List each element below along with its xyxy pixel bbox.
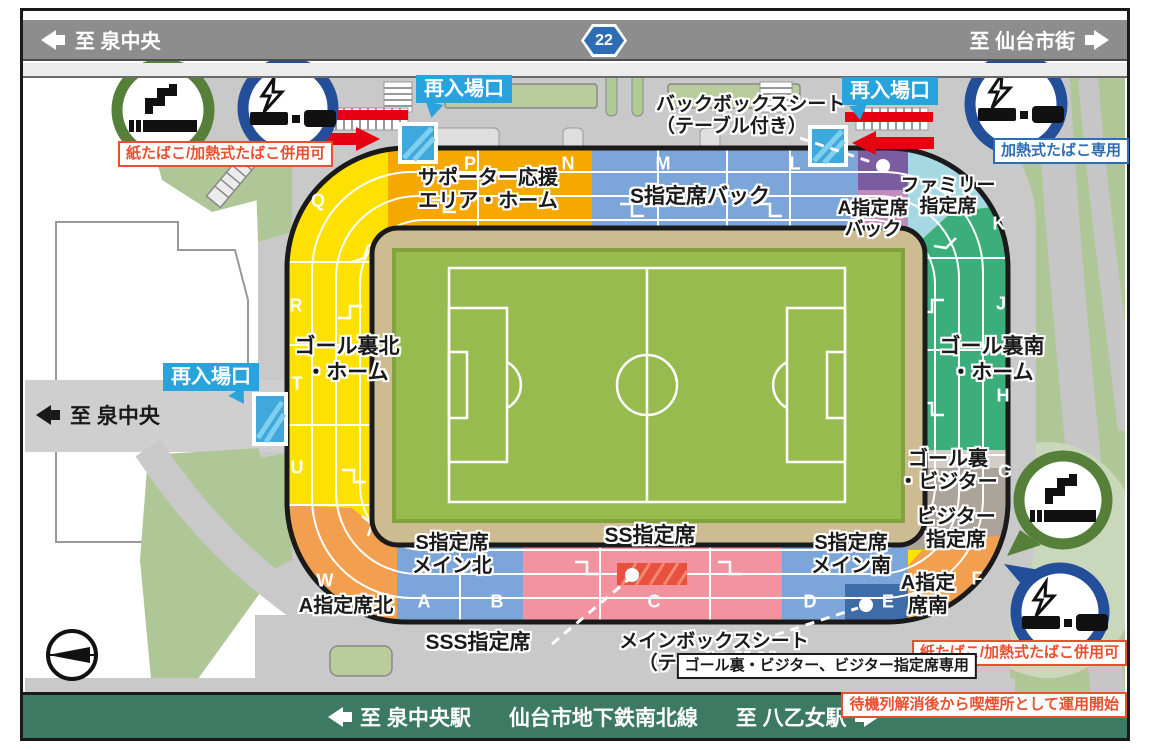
left-arrow-icon [36,405,60,425]
subway-left-label: 至 泉中央駅 [360,702,471,732]
left-arrow-icon [328,707,352,727]
top-road-bar: 至 泉中央 至 仙台市街 [23,20,1127,61]
left-road-label: 至 泉中央 [36,400,160,430]
reentry-label-west: 再入場口 [163,363,259,391]
block-letter-d: D [804,592,817,613]
block-letter-l: L [790,154,801,175]
block-letter-t: T [292,374,303,395]
section-label-s-main-south: S指定席メイン南 [811,532,891,578]
block-letter-w: W [317,571,334,592]
block-letter-f: F [972,569,983,590]
section-label-s-back: S指定席バック [630,185,770,208]
right-arrow-icon [1085,30,1109,50]
block-letter-q: Q [311,191,325,212]
left-arrow-icon [41,30,65,50]
stadium-map-page: { "top_bar": { "left": "至 泉中央", "route_n… [0,0,1150,750]
top-bar-left-label: 至 泉中央 [75,25,161,54]
smoking-rule-heated-only: 加熱式たばこ専用 [993,138,1129,164]
reentry-gate-west [254,394,286,444]
block-letter-g: G [998,462,1012,483]
block-letter-r: R [290,296,303,317]
section-label-goal-south: ゴール裏南・ホーム [940,334,1045,386]
top-bar-right-label: 至 仙台市街 [969,25,1075,54]
section-label-visitor: ビジター指定席 [916,506,996,552]
smoking-rule-both-top: 紙たばこ/加熱式たばこ併用可 [118,141,333,167]
subway-left: 至 泉中央駅 [328,702,471,732]
section-label-a-south: A指定席南 [901,572,955,618]
block-letter-n: N [562,154,575,175]
subway-right-label: 至 八乙女駅 [736,702,847,732]
block-letter-c: C [648,592,661,613]
smoking-rule-visitor-only: ゴール裏・ビジター、ビジター指定席専用 [677,653,977,679]
label-pointer [849,104,869,121]
block-letter-k: K [993,214,1006,235]
block-letter-h: H [997,386,1010,407]
section-label-sss: SSS指定席 [425,631,530,654]
section-label-s-main-north: S指定席メイン北 [412,532,492,578]
route-number: 22 [581,24,627,57]
smoking-rule-note: 待機列解消後から喫煙所として運用開始 [841,692,1127,718]
section-label-goal-north: ゴール裏北・ホーム [295,334,400,386]
section-label-a-north: A指定席北 [299,595,393,618]
section-label-a-back: A指定席バック [838,198,909,240]
section-label-goal-visitor: ゴール裏・ビジター [898,448,998,494]
compass-icon [48,631,96,679]
block-letter-e: E [882,592,894,613]
reentry-gate-north-west [400,124,436,162]
sidewalk-strip [23,63,1127,78]
soccer-field [372,228,925,545]
block-letter-u: U [291,458,304,479]
reentry-label-north-east: 再入場口 [842,77,938,105]
section-label-family: ファミリー指定席 [900,175,995,217]
block-letter-b: B [491,592,504,613]
section-e-block [845,584,908,622]
route-badge: 22 [581,24,627,57]
block-letter-a: A [418,592,431,613]
block-letter-p: P [464,154,476,175]
section-label-supporter: サポーター応援エリア・ホーム [418,167,558,213]
reentry-label-north-west: 再入場口 [416,75,512,103]
block-letter-m: M [656,154,671,175]
subway-line-label: 仙台市地下鉄南北線 [509,702,698,732]
block-letter-j: J [996,294,1006,315]
section-label-back-box: バックボックスシート（テーブル付き） [656,94,845,138]
section-label-ss: SS指定席 [604,524,695,547]
